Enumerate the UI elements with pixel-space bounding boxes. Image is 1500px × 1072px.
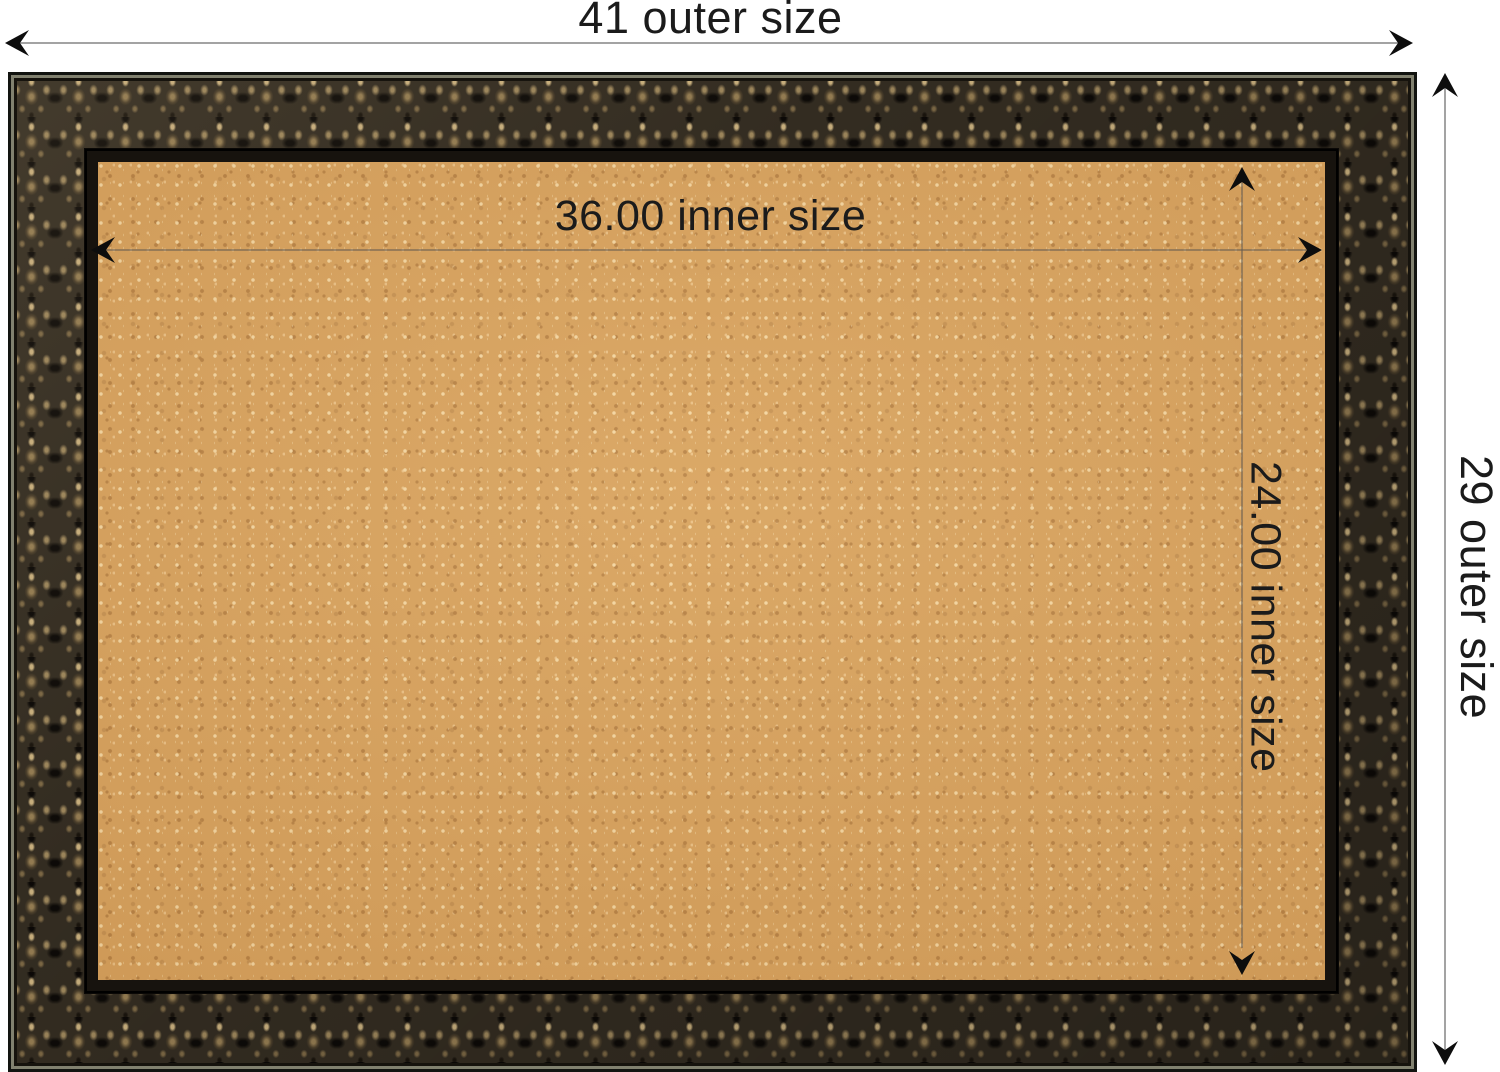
- arrowhead-right-icon: [1388, 30, 1414, 56]
- outer-height-label: 29 outer size: [1450, 455, 1500, 719]
- outer-width-dimension-line: [12, 42, 1406, 44]
- outer-width-label: 41 outer size: [0, 0, 1421, 44]
- arrowhead-up-icon: [1229, 166, 1255, 192]
- cork-board-surface: [98, 162, 1325, 980]
- inner-height-label: 24.00 inner size: [1240, 461, 1289, 773]
- product-dimension-diagram: 41 outer size 36.00 inner size 24.00 inn…: [0, 0, 1500, 1072]
- inner-height-dimension-line: [1241, 172, 1243, 948]
- arrowhead-left-icon: [90, 237, 116, 263]
- inner-width-label: 36.00 inner size: [0, 192, 1421, 241]
- inner-width-dimension-line: [97, 249, 1319, 251]
- arrowhead-down-icon: [1432, 1040, 1458, 1066]
- arrowhead-up-icon: [1432, 72, 1458, 98]
- arrowhead-right-icon: [1297, 237, 1323, 263]
- arrowhead-down-icon: [1229, 950, 1255, 976]
- outer-height-dimension-line: [1444, 80, 1446, 1058]
- frame-inner-lip: [85, 149, 1338, 993]
- arrowhead-left-icon: [4, 30, 30, 56]
